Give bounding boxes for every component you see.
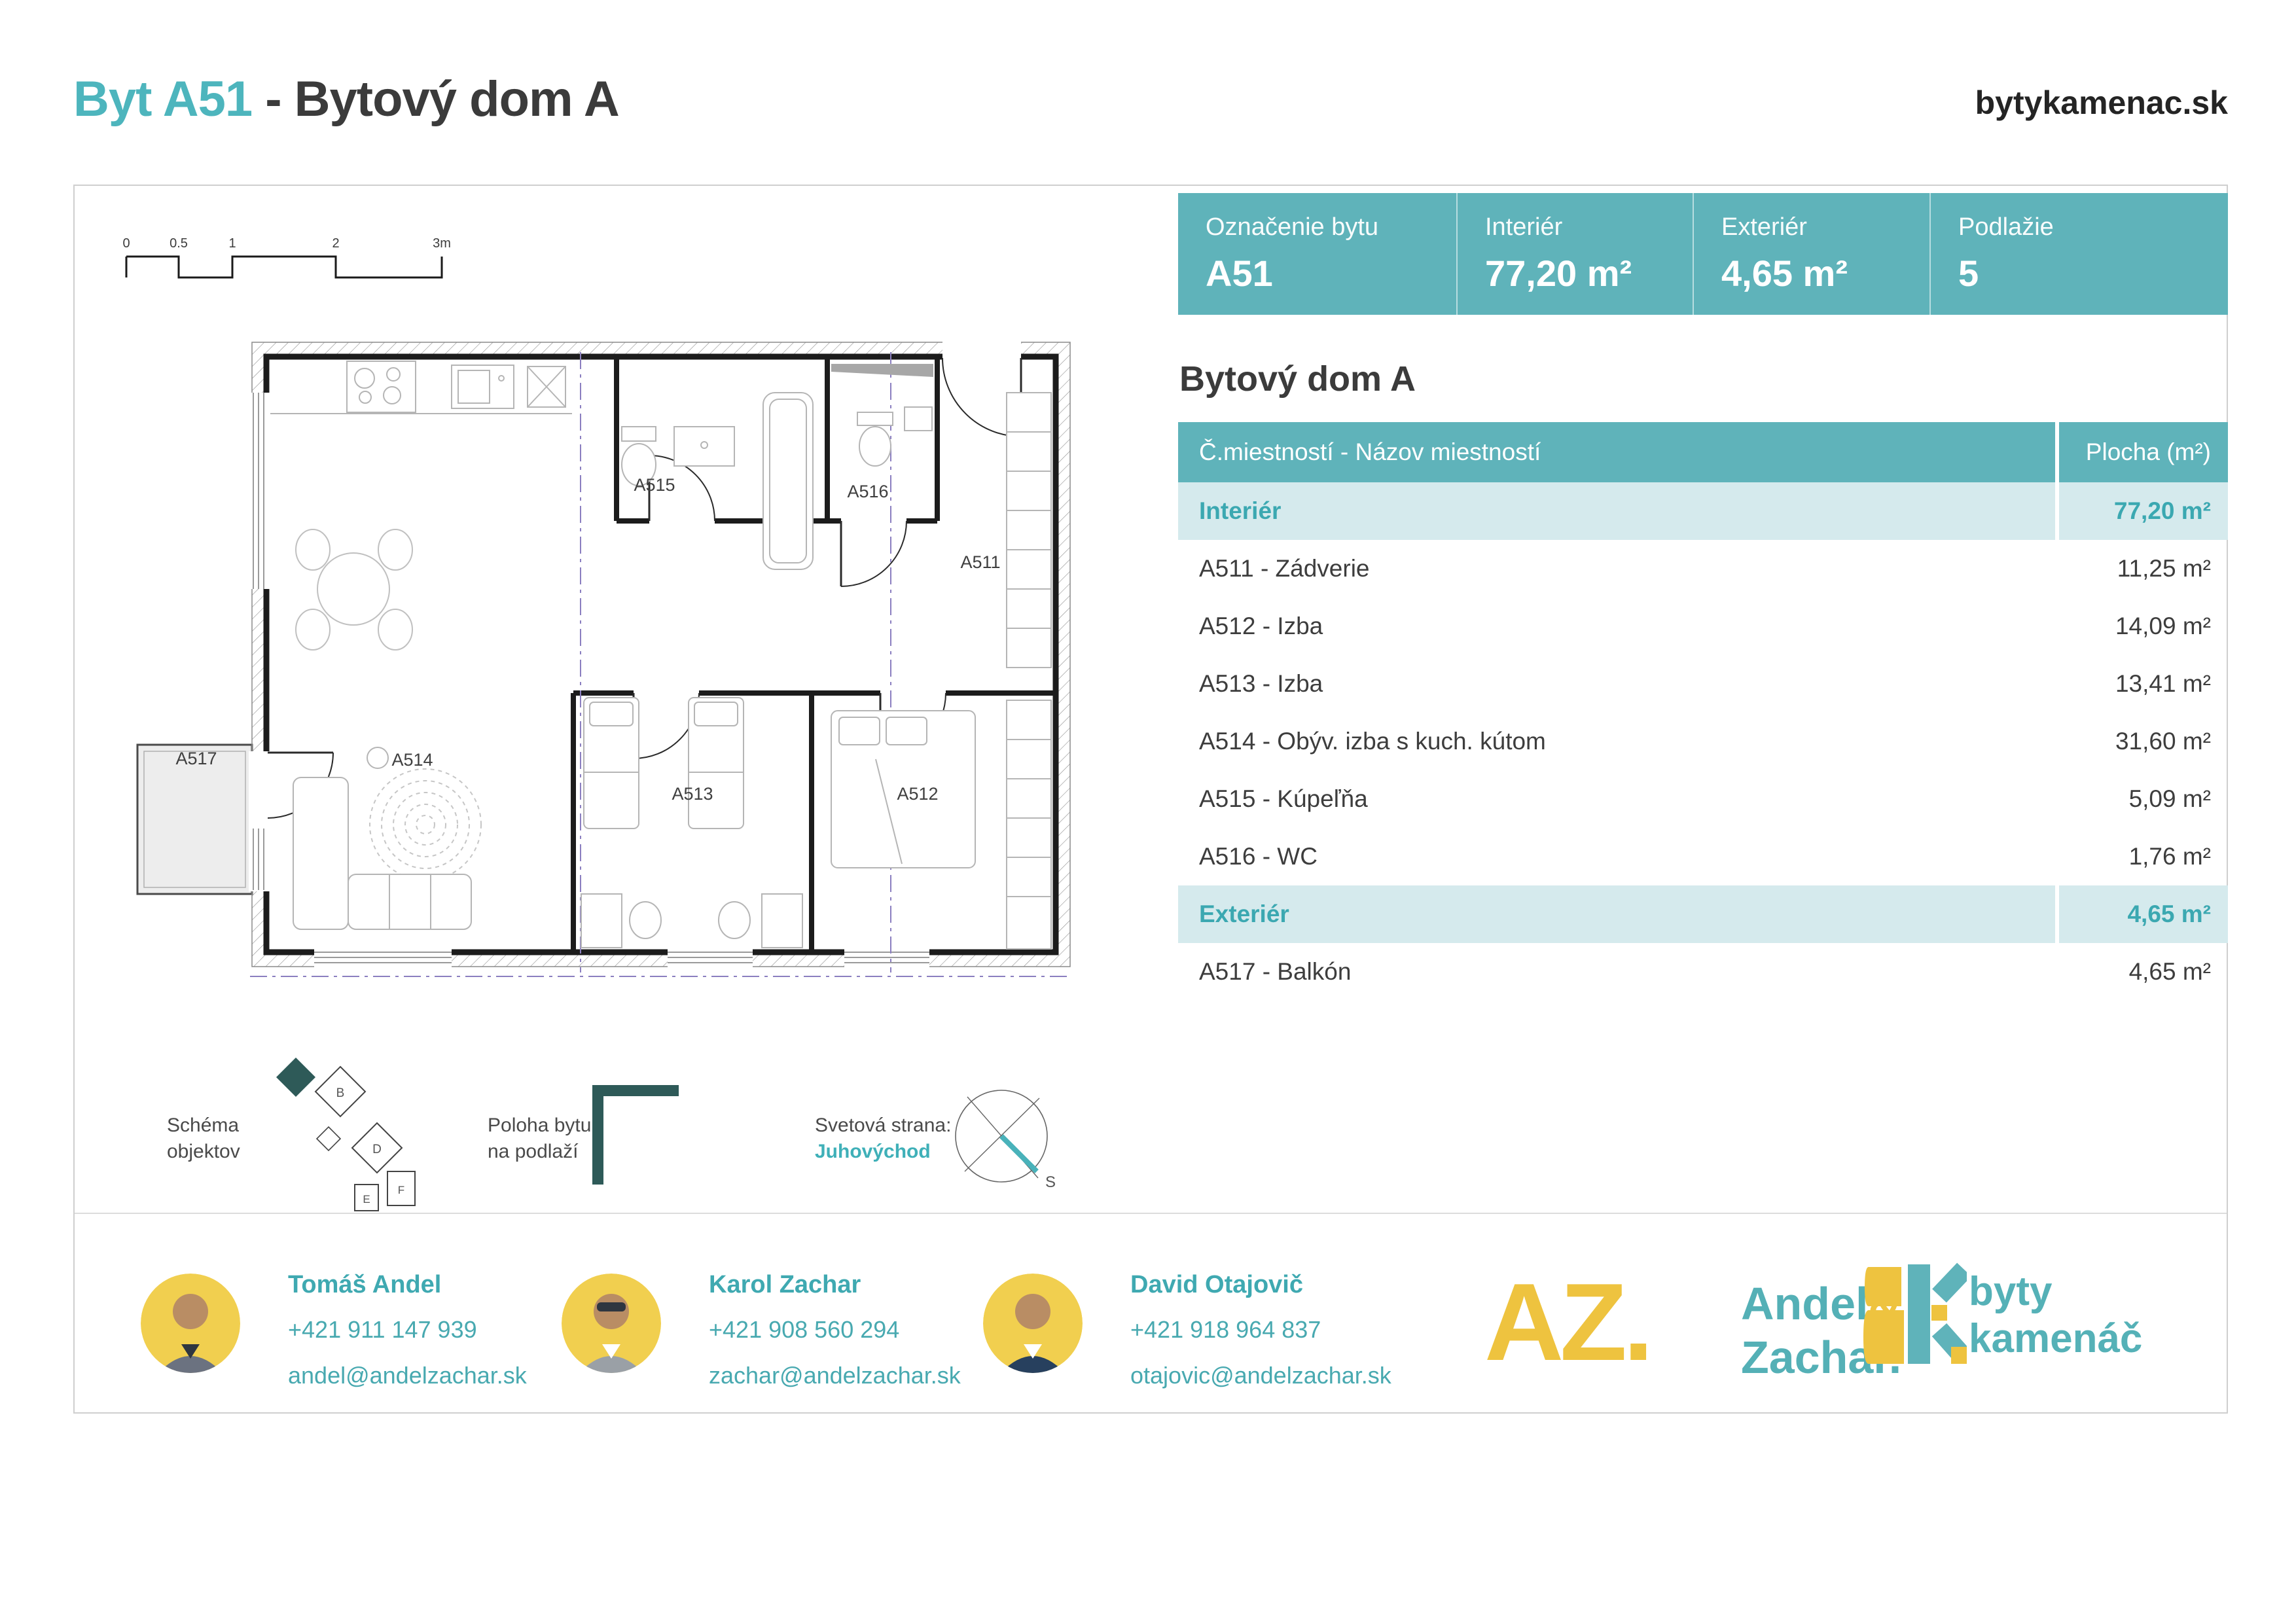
byty-kamenac-logo-text: byty kamenáč: [1969, 1268, 2142, 1363]
apartment-id-title: Byt A51: [73, 71, 252, 127]
row-name: Exteriér: [1178, 885, 2055, 943]
info-cell-designation: Označenie bytu A51: [1178, 193, 1458, 315]
compass-label-block: Svetová strana: Juhovýchod: [815, 1113, 951, 1165]
building-e-label: E: [363, 1193, 370, 1205]
info-cell-interior: Interiér 77,20 m²: [1458, 193, 1694, 315]
az-monogram: AZ.: [1484, 1259, 1650, 1385]
info-value: 77,20 m²: [1485, 252, 1693, 294]
room-label-a511: A511: [960, 552, 1000, 572]
info-cell-exterior: Exteriér 4,65 m²: [1694, 193, 1931, 315]
row-area: 31,60 m²: [2059, 713, 2228, 770]
table-title: Bytový dom A: [1179, 359, 1416, 399]
contact-name: David Otajovič: [1130, 1271, 1497, 1299]
info-cell-floor: Podlažie 5: [1931, 193, 2228, 315]
compass-direction-value: Juhovýchod: [815, 1139, 951, 1165]
room-label-a513: A513: [672, 784, 713, 804]
flyer-page: Byt A51- Bytový dom A bytykamenac.sk 0 0…: [0, 0, 2296, 1623]
avatar: [562, 1274, 661, 1373]
scale-tick-3m: 3m: [433, 236, 451, 251]
hall-wardrobe: [1007, 393, 1051, 668]
row-name: A516 - WC: [1178, 828, 2055, 885]
info-label: Exteriér: [1721, 213, 1929, 241]
table-row: A515 - Kúpeľňa 5,09 m²: [1178, 770, 2228, 828]
row-area: 4,65 m²: [2059, 943, 2228, 1001]
info-value: A51: [1206, 252, 1456, 294]
table-row-interior-section: Interiér 77,20 m²: [1178, 482, 2228, 540]
footer-divider: [75, 1213, 2227, 1214]
column-header-area: Plocha (m²): [2059, 422, 2228, 482]
andel-zachar-logo: AZ. Andel& Zachar.: [1484, 1268, 1851, 1393]
bk-name-2: kamenáč: [1969, 1315, 2142, 1363]
floor-plan: 0 0.5 1 2 3m: [85, 196, 1158, 1080]
row-area: 11,25 m²: [2059, 540, 2228, 597]
website-link[interactable]: bytykamenac.sk: [1975, 84, 2228, 122]
scale-bar: [126, 257, 442, 277]
building-f-label: F: [398, 1184, 404, 1196]
row-area: 1,76 m²: [2059, 828, 2228, 885]
rooms-table: Č.miestností - Názov miestností Plocha (…: [1178, 422, 2228, 1001]
scale-tick-2: 2: [332, 236, 339, 251]
row-area: 5,09 m²: [2059, 770, 2228, 828]
row-name: Interiér: [1178, 482, 2055, 540]
scale-tick-1: 1: [228, 236, 236, 251]
table-row: A516 - WC 1,76 m²: [1178, 828, 2228, 885]
table-row: A514 - Obýv. izba s kuch. kútom 31,60 m²: [1178, 713, 2228, 770]
row-name: A512 - Izba: [1178, 597, 2055, 655]
row-name: A513 - Izba: [1178, 655, 2055, 713]
byty-kamenac-logo-mark: [1862, 1262, 1967, 1366]
info-label: Interiér: [1485, 213, 1693, 241]
info-value: 5: [1958, 252, 2228, 294]
position-label: Poloha bytu na podlaží: [488, 1113, 591, 1165]
row-name: A514 - Obýv. izba s kuch. kútom: [1178, 713, 2055, 770]
building-b-label: B: [336, 1086, 345, 1100]
row-name: A511 - Zádverie: [1178, 540, 2055, 597]
table-row: A517 - Balkón 4,65 m²: [1178, 943, 2228, 1001]
compass-south-letter: S: [1045, 1173, 1056, 1191]
room-label-a514: A514: [391, 750, 433, 770]
compass-label: Svetová strana:: [815, 1113, 951, 1139]
avatar: [983, 1274, 1083, 1373]
position-label-line2: na podlaží: [488, 1139, 591, 1165]
building-a-shape: [276, 1058, 315, 1097]
info-value: 4,65 m²: [1721, 252, 1929, 294]
window-left: [249, 393, 270, 589]
az-name-1: Andel: [1741, 1278, 1868, 1329]
row-area: 14,09 m²: [2059, 597, 2228, 655]
position-label-line1: Poloha bytu: [488, 1113, 591, 1139]
table-row: A512 - Izba 14,09 m²: [1178, 597, 2228, 655]
contact-phone[interactable]: +421 918 964 837: [1130, 1316, 1497, 1344]
room-label-a517: A517: [175, 749, 217, 768]
room-label-a512: A512: [897, 784, 938, 804]
scale-tick-0: 0: [122, 236, 130, 251]
schema-label-line1: Schéma: [167, 1113, 240, 1139]
floor-position-icon: [589, 1079, 694, 1190]
room-label-a515: A515: [634, 475, 675, 495]
table-row-exterior-section: Exteriér 4,65 m²: [1178, 885, 2228, 943]
row-area: 13,41 m²: [2059, 655, 2228, 713]
schema-label-line2: objektov: [167, 1139, 240, 1165]
room-label-a516: A516: [847, 482, 888, 501]
row-name: A515 - Kúpeľňa: [1178, 770, 2055, 828]
avatar: [141, 1274, 240, 1373]
apartment-info-bar: Označenie bytu A51 Interiér 77,20 m² Ext…: [1178, 193, 2228, 315]
scale-tick-05: 0.5: [170, 236, 188, 251]
compass-icon: S: [944, 1079, 1068, 1203]
building-title: - Bytový dom A: [265, 71, 619, 127]
schema-label: Schéma objektov: [167, 1113, 240, 1165]
table-row: A513 - Izba 13,41 m²: [1178, 655, 2228, 713]
table-header: Č.miestností - Názov miestností Plocha (…: [1178, 422, 2228, 482]
page-title: Byt A51- Bytový dom A: [73, 71, 619, 128]
bk-name-1: byty: [1969, 1268, 2142, 1315]
row-area: 77,20 m²: [2059, 482, 2228, 540]
row-name: A517 - Balkón: [1178, 943, 2055, 1001]
table-row: A511 - Zádverie 11,25 m²: [1178, 540, 2228, 597]
row-area: 4,65 m²: [2059, 885, 2228, 943]
info-label: Označenie bytu: [1206, 213, 1456, 241]
column-header-room: Č.miestností - Názov miestností: [1178, 422, 2055, 482]
info-label: Podlažie: [1958, 213, 2228, 241]
building-d-label: D: [372, 1143, 382, 1156]
buildings-schema-icon: B D E F: [255, 1046, 471, 1216]
contact-email[interactable]: otajovic@andelzachar.sk: [1130, 1362, 1497, 1389]
